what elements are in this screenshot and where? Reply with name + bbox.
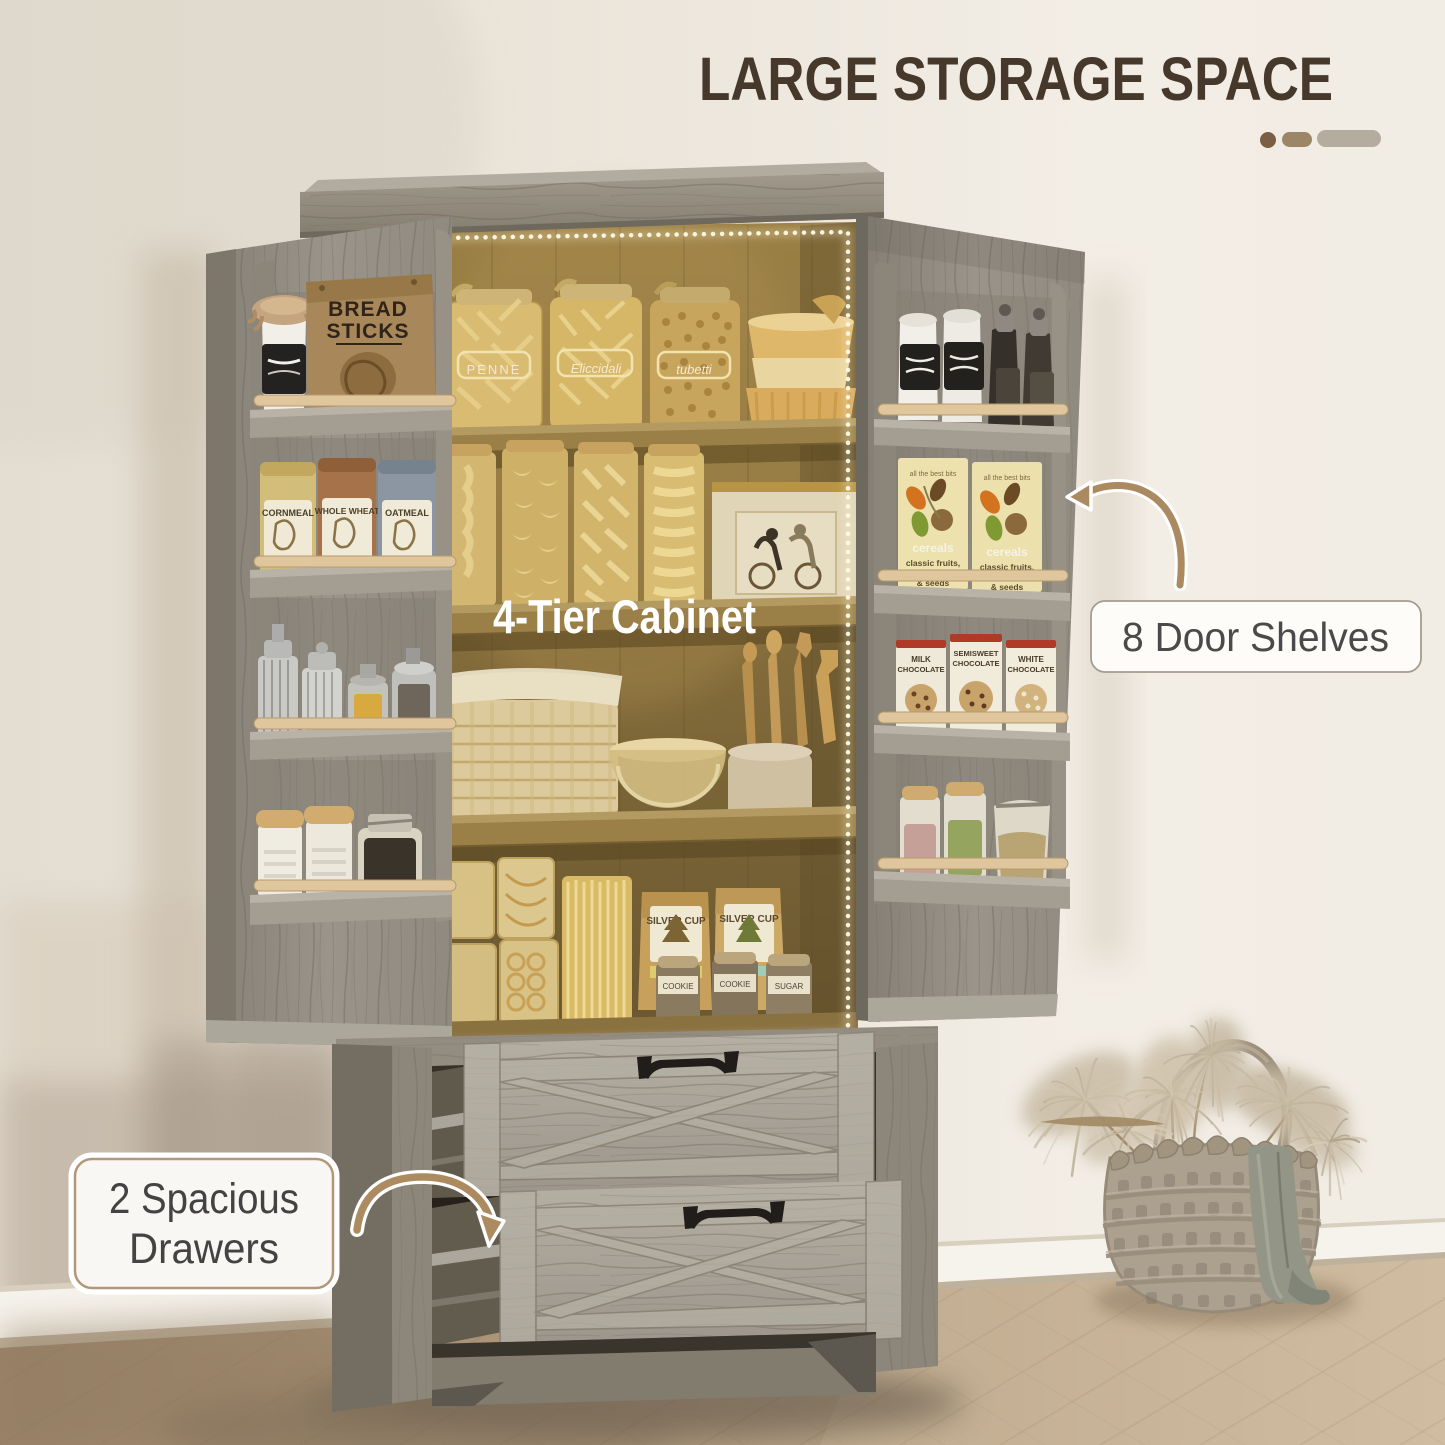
svg-text:cereals: cereals (912, 541, 954, 555)
svg-text:BREAD: BREAD (328, 298, 408, 321)
svg-text:COOKIE: COOKIE (662, 982, 693, 991)
svg-text:2 Spacious: 2 Spacious (109, 1175, 299, 1223)
svg-text:SUGAR: SUGAR (775, 982, 804, 991)
svg-text:WHITE: WHITE (1018, 655, 1044, 664)
svg-text:Drawers: Drawers (129, 1225, 279, 1273)
svg-text:PENNE: PENNE (467, 362, 522, 377)
svg-text:all the best bits: all the best bits (984, 475, 1031, 482)
svg-text:CHOCOLATE: CHOCOLATE (1008, 665, 1055, 674)
svg-text:COOKIE: COOKIE (719, 980, 750, 989)
svg-text:cereals: cereals (986, 545, 1028, 559)
svg-text:all the best bits: all the best bits (910, 471, 957, 478)
svg-text:STICKS: STICKS (326, 320, 409, 343)
svg-text:4-Tier Cabinet: 4-Tier Cabinet (493, 590, 756, 643)
svg-text:CHOCOLATE: CHOCOLATE (898, 665, 945, 674)
svg-text:tubetti: tubetti (676, 362, 713, 377)
svg-text:LARGE STORAGE SPACE: LARGE STORAGE SPACE (699, 45, 1333, 113)
svg-text:CHOCOLATE: CHOCOLATE (953, 659, 1000, 668)
svg-text:SEMISWEET: SEMISWEET (953, 649, 998, 658)
svg-text:OATMEAL: OATMEAL (385, 508, 429, 518)
svg-text:MILK: MILK (911, 655, 931, 664)
svg-text:CORNMEAL: CORNMEAL (262, 508, 314, 518)
svg-text:classic fruits,: classic fruits, (906, 558, 960, 568)
svg-text:Eliccidali: Eliccidali (571, 361, 623, 376)
svg-text:WHOLE WHEAT: WHOLE WHEAT (315, 506, 380, 516)
svg-text:8 Door Shelves: 8 Door Shelves (1122, 614, 1389, 660)
